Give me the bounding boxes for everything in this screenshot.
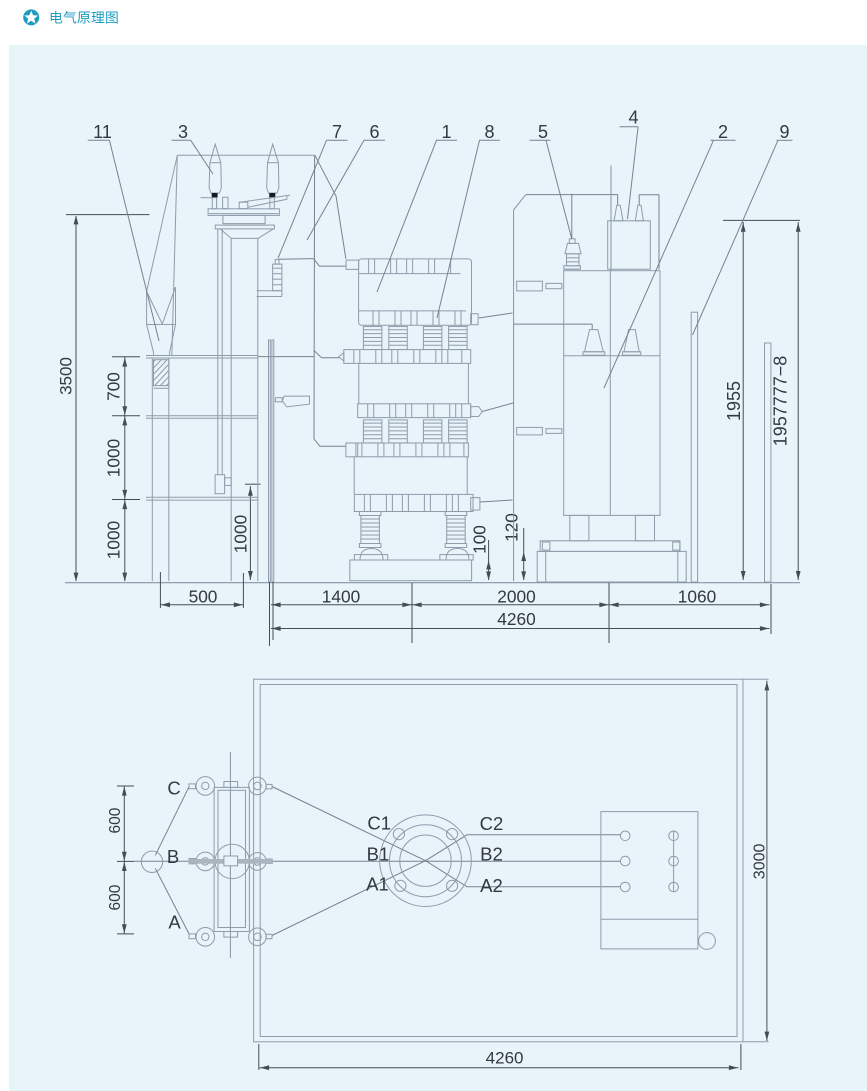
svg-text:B1: B1 [367, 843, 390, 864]
svg-text:5: 5 [538, 122, 548, 142]
svg-text:3000: 3000 [751, 844, 768, 880]
svg-text:1000: 1000 [231, 515, 251, 553]
svg-text:1000: 1000 [104, 439, 124, 477]
svg-text:120: 120 [502, 513, 522, 542]
svg-text:C1: C1 [367, 813, 391, 834]
svg-text:600: 600 [107, 884, 124, 910]
svg-text:C: C [167, 777, 180, 798]
svg-text:A1: A1 [366, 873, 389, 894]
svg-text:1060: 1060 [678, 587, 716, 607]
svg-text:1957777−8: 1957777−8 [771, 356, 791, 447]
svg-text:4260: 4260 [486, 1049, 524, 1068]
svg-text:1: 1 [441, 122, 451, 142]
svg-text:1400: 1400 [322, 587, 360, 607]
svg-text:700: 700 [104, 372, 124, 401]
svg-text:电气原理图: 电气原理图 [49, 10, 119, 25]
svg-text:C2: C2 [480, 813, 504, 834]
svg-text:4260: 4260 [497, 609, 535, 629]
svg-text:100: 100 [470, 525, 490, 554]
svg-text:2: 2 [718, 122, 728, 142]
svg-text:B: B [167, 846, 179, 867]
svg-text:6: 6 [369, 122, 379, 142]
svg-text:3500: 3500 [56, 357, 75, 395]
svg-text:9: 9 [779, 122, 789, 142]
svg-text:11: 11 [93, 122, 112, 142]
svg-text:500: 500 [189, 587, 218, 607]
svg-text:1955: 1955 [724, 381, 744, 421]
svg-text:1000: 1000 [104, 521, 124, 559]
svg-text:600: 600 [107, 807, 124, 833]
svg-text:8: 8 [484, 122, 494, 142]
svg-text:4: 4 [628, 108, 638, 128]
svg-text:A: A [168, 911, 181, 932]
svg-text:B2: B2 [480, 844, 503, 865]
svg-text:7: 7 [332, 122, 342, 142]
svg-text:A2: A2 [480, 875, 503, 896]
svg-text:2000: 2000 [497, 587, 535, 607]
svg-text:3: 3 [178, 122, 188, 142]
